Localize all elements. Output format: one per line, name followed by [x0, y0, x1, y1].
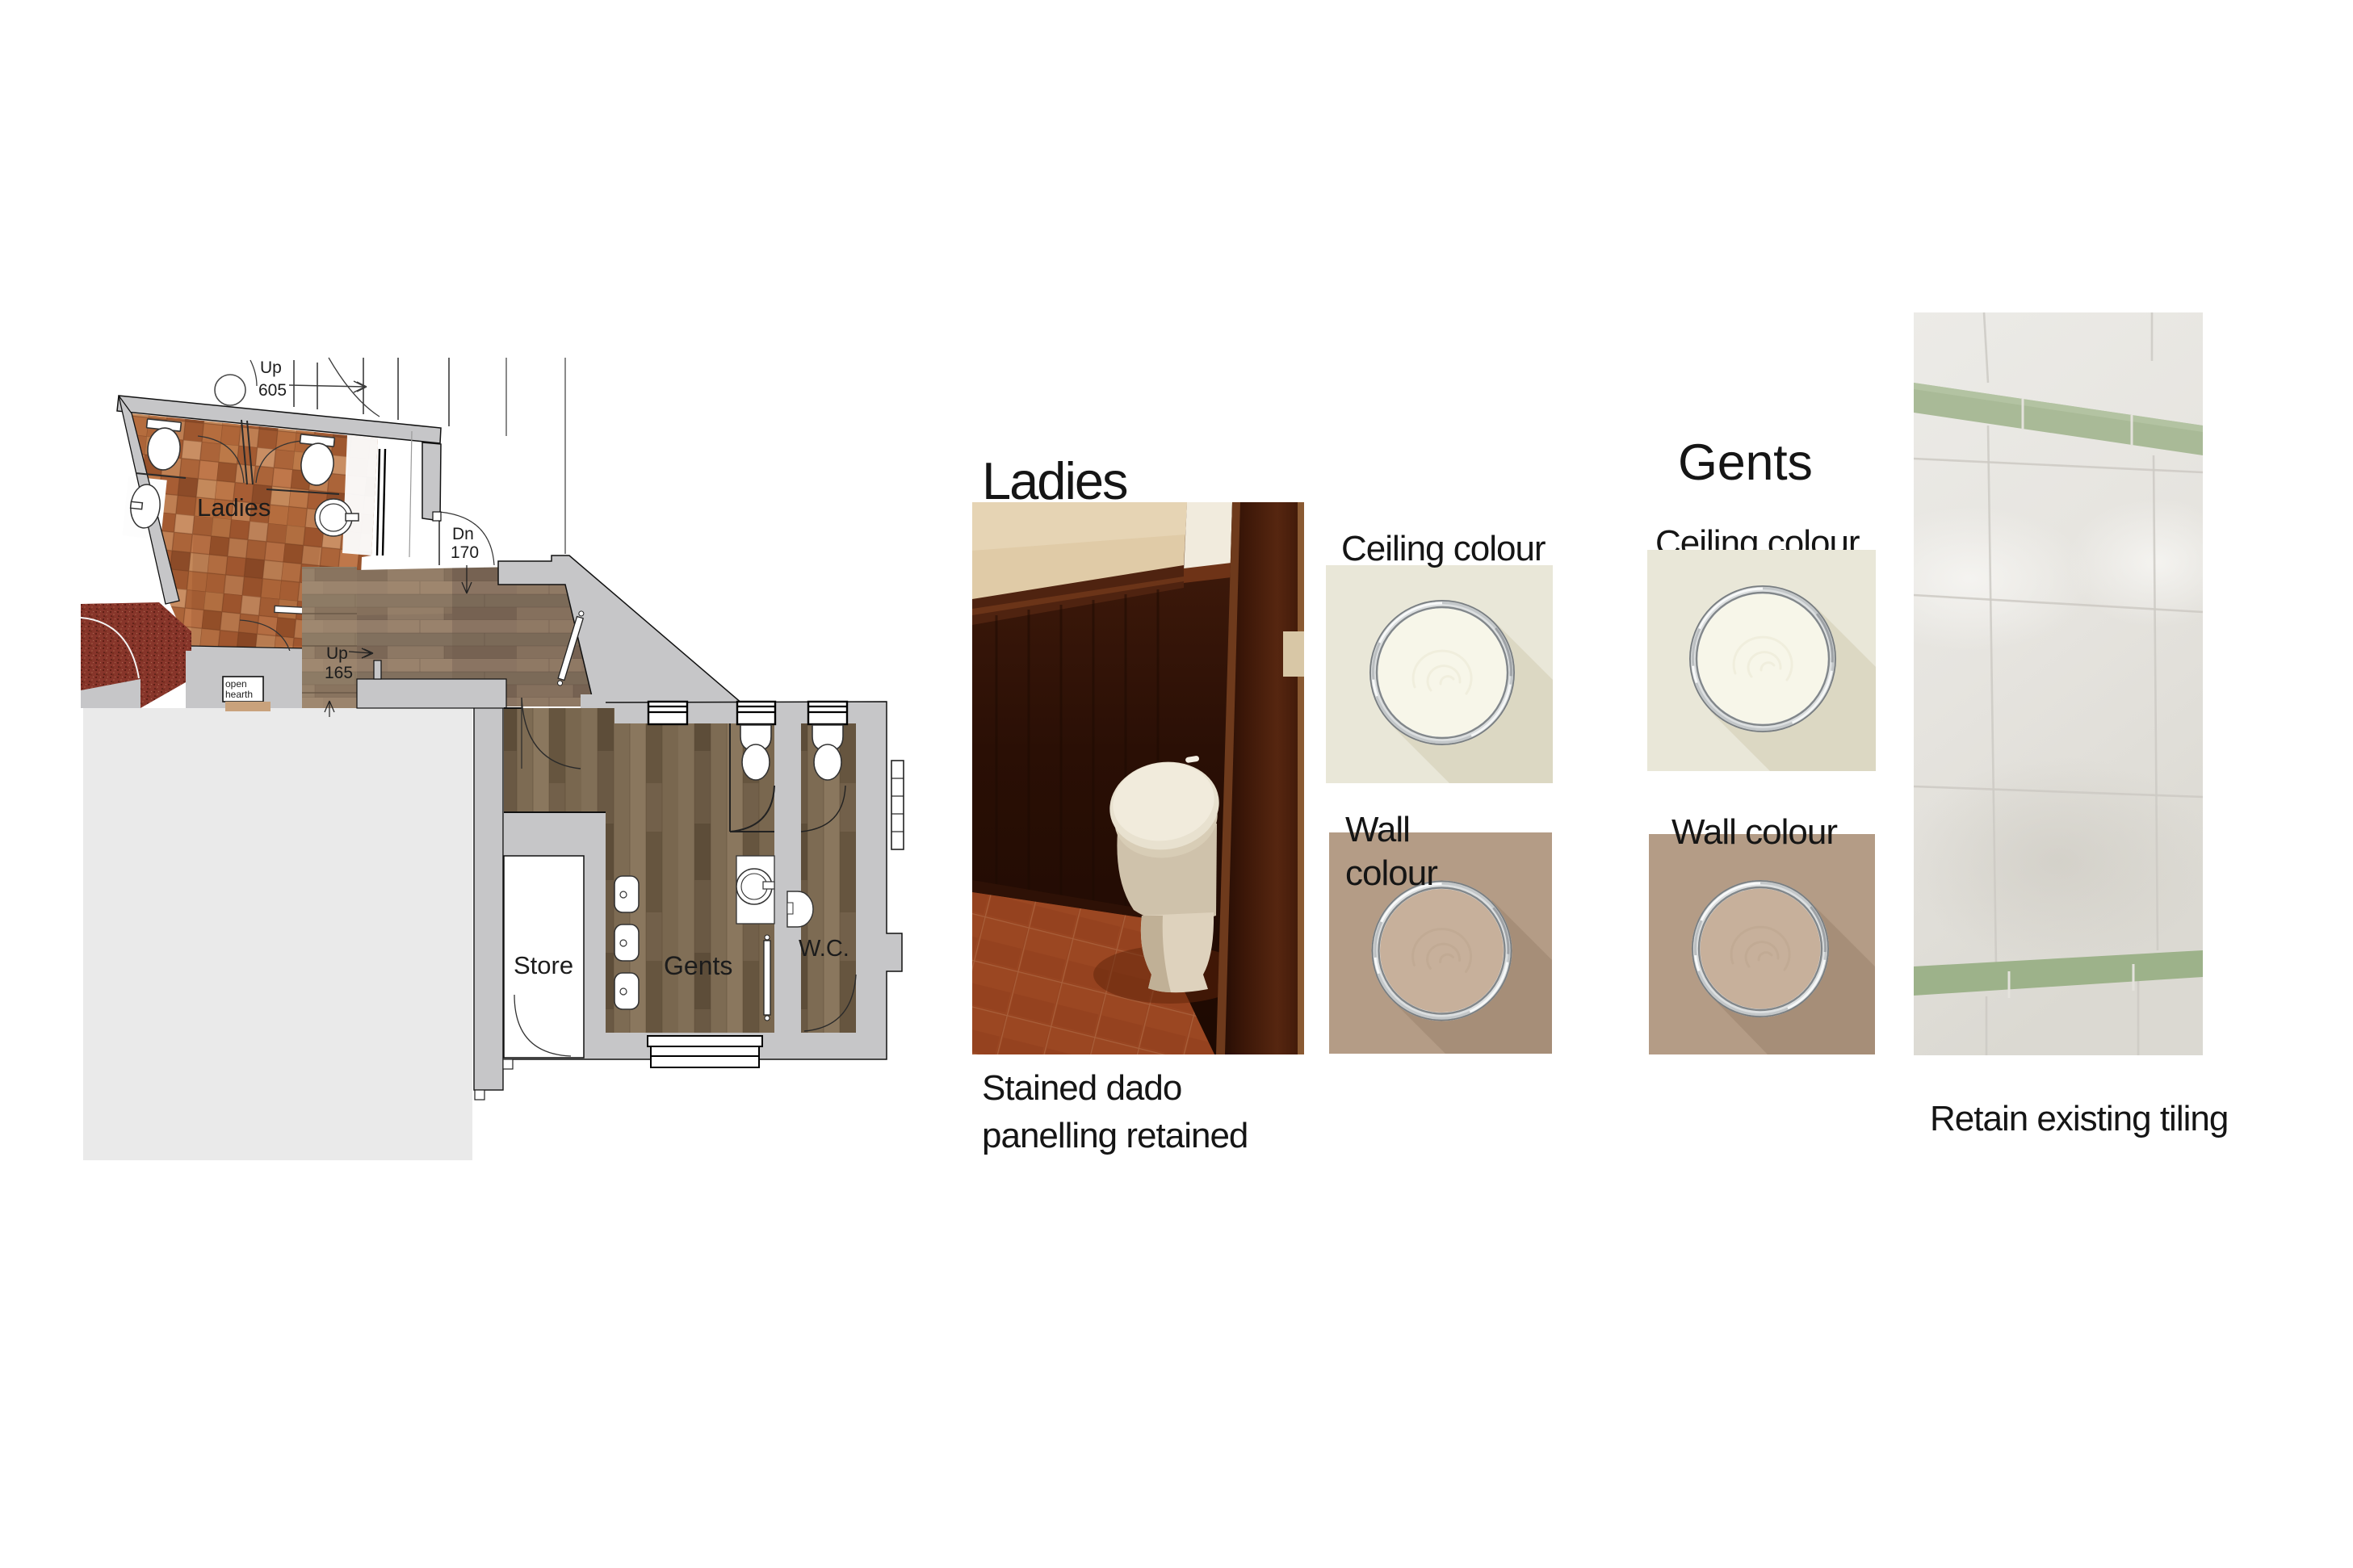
svg-text:Up: Up: [260, 358, 282, 377]
svg-text:605: 605: [258, 381, 287, 400]
svg-text:Ladies: Ladies: [197, 493, 271, 522]
svg-text:Up: Up: [326, 644, 348, 663]
svg-text:Dn: Dn: [452, 525, 474, 543]
svg-text:170: 170: [451, 543, 479, 562]
svg-text:open: open: [225, 678, 247, 690]
svg-text:Store: Store: [514, 951, 573, 979]
svg-text:hearth: hearth: [225, 689, 253, 700]
svg-text:W.C.: W.C.: [799, 936, 849, 962]
svg-text:Gents: Gents: [664, 951, 732, 980]
svg-text:165: 165: [325, 664, 353, 682]
